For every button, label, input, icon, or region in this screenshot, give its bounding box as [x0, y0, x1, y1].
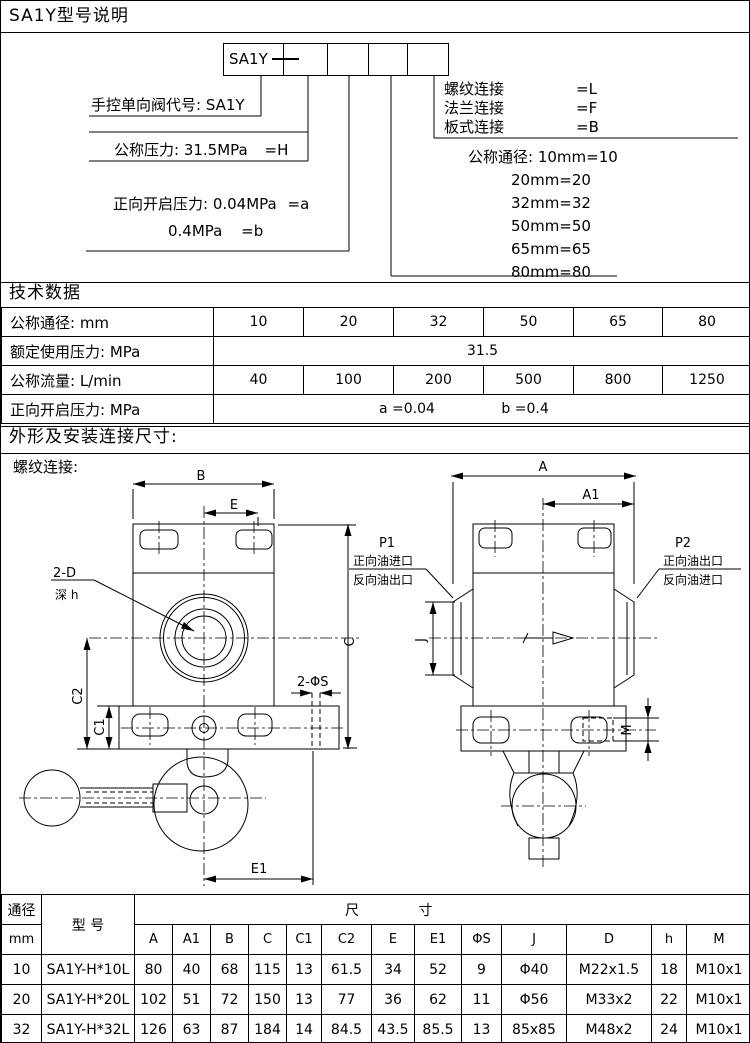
right-view-dimensions: A A1 J M P1 正向油进口 反向油出口 — [349, 460, 741, 761]
model-code-dash — [272, 58, 299, 60]
dim-label-E: E — [230, 498, 238, 513]
dimension-table: 通径 型 号 尺 寸 mm A A1 B C C1 C2 E E1 ΦS J D… — [1, 894, 750, 1043]
tech-data-table: 公称通径: mm 10 20 32 50 65 80 额定使用压力: MPa 3… — [1, 307, 750, 424]
cell: 84.5 — [322, 1015, 372, 1043]
cell-model: SA1Y-H*20L — [42, 985, 135, 1015]
connection-label: 螺纹连接 — [444, 80, 504, 98]
row-label: 额定使用压力: MPa — [2, 337, 214, 366]
cell: M10x1 — [687, 985, 750, 1015]
cell-dn: 32 — [2, 1015, 42, 1043]
header-dn-unit: mm — [2, 925, 42, 955]
dim-label-M: M — [620, 724, 635, 735]
cell: 115 — [249, 955, 287, 985]
cell: 1250 — [663, 366, 750, 395]
divider — [1, 453, 750, 454]
connection-label: 板式连接 — [444, 118, 504, 136]
outline-drawing: B E C C2 C1 — [1, 456, 750, 894]
cell: 40 — [173, 955, 211, 985]
cell: 150 — [249, 985, 287, 1015]
dim-label-C1: C1 — [93, 718, 108, 735]
nominal-pressure-code: =H — [265, 141, 289, 159]
nominal-pressure-label: 公称压力: 31.5MPa =H — [114, 142, 288, 159]
dim-label-C2: C2 — [71, 687, 86, 704]
cell: 72 — [211, 985, 249, 1015]
cell: 24 — [652, 1015, 687, 1043]
diameter-option: 20mm=20 — [511, 172, 591, 189]
cell: 85.5 — [415, 1015, 462, 1043]
cell: 85x85 — [502, 1015, 567, 1043]
cell: 34 — [372, 955, 415, 985]
cell: 68 — [211, 955, 249, 985]
cell: M10x1 — [687, 1015, 750, 1043]
cell-model: SA1Y-H*32L — [42, 1015, 135, 1043]
dim-label-C: C — [343, 637, 358, 646]
port-P1-line2: 反向油出口 — [353, 572, 413, 587]
cell: M10x1 — [687, 955, 750, 985]
col-header: C1 — [287, 925, 322, 955]
opening-b: b =0.4 — [501, 401, 548, 417]
cell-merged: a =0.04 b =0.4 — [214, 395, 750, 424]
connection-code: =F — [576, 100, 597, 117]
cell: Φ56 — [502, 985, 567, 1015]
diameter-option: 50mm=50 — [511, 218, 591, 235]
col-header: E — [372, 925, 415, 955]
cell-merged: 31.5 — [214, 337, 750, 366]
left-view-body — [89, 506, 361, 886]
port-label-P1: P1 — [379, 536, 395, 551]
cell: 13 — [287, 955, 322, 985]
cell: 20 — [304, 308, 394, 337]
opening-pressure-code1: =a — [288, 195, 310, 213]
col-header: h — [652, 925, 687, 955]
opening-pressure-line1: 正向开启压力: 0.04MPa =a — [113, 196, 309, 213]
col-header: C2 — [322, 925, 372, 955]
cell: 63 — [173, 1015, 211, 1043]
diameter-option: 32mm=32 — [511, 195, 591, 212]
cell: 65 — [574, 308, 663, 337]
dim-label-A1: A1 — [582, 488, 599, 503]
cell: 13 — [287, 985, 322, 1015]
opening-pressure-text2: 0.4MPa — [168, 222, 222, 240]
table-row: 公称通径: mm 10 20 32 50 65 80 — [2, 308, 750, 337]
dim-label-s-holes: 2-ΦS — [297, 675, 328, 690]
row-label: 正向开启压力: MPa — [2, 395, 214, 424]
cell: 100 — [304, 366, 394, 395]
cell: 40 — [214, 366, 304, 395]
col-header: D — [567, 925, 652, 955]
connection-option-thread: 螺纹连接 =L — [444, 81, 664, 98]
cell: 80 — [135, 955, 173, 985]
cell: 80 — [663, 308, 750, 337]
opening-pressure-line2: 0.4MPa =b — [168, 223, 263, 240]
connection-code: =B — [576, 119, 599, 136]
table-header-row: 通径 型 号 尺 寸 — [2, 895, 750, 925]
connection-code: =L — [576, 81, 597, 98]
left-view-handle — [19, 749, 266, 851]
cell: 500 — [484, 366, 574, 395]
col-header: E1 — [415, 925, 462, 955]
cell: 61.5 — [322, 955, 372, 985]
cell: 50 — [484, 308, 574, 337]
cell: 184 — [249, 1015, 287, 1043]
left-view-dimensions: B E C C2 C1 — [51, 469, 358, 885]
col-header: J — [502, 925, 567, 955]
cell: 800 — [574, 366, 663, 395]
cell-dn: 20 — [2, 985, 42, 1015]
dim-label-E1: E1 — [251, 862, 268, 877]
cell: 102 — [135, 985, 173, 1015]
header-dn: 通径 — [2, 895, 42, 925]
dim-label-A: A — [539, 460, 548, 475]
cell-dn: 10 — [2, 955, 42, 985]
header-size-r: 寸 — [418, 903, 432, 919]
cell: 126 — [135, 1015, 173, 1043]
cell: 36 — [372, 985, 415, 1015]
table-row: 额定使用压力: MPa 31.5 — [2, 337, 750, 366]
page-title: SA1Y型号说明 — [9, 7, 129, 26]
cell: 200 — [394, 366, 484, 395]
header-model: 型 号 — [42, 895, 135, 955]
cell: 43.5 — [372, 1015, 415, 1043]
dim-label-holes: 2-D — [53, 566, 76, 581]
cell: 62 — [415, 985, 462, 1015]
table-row: 20 SA1Y-H*20L 102 51 72 150 13 77 36 62 … — [2, 985, 750, 1015]
port-label-P2: P2 — [675, 536, 691, 551]
table-row: 公称流量: L/min 40 100 200 500 800 1250 — [2, 366, 750, 395]
dim-label-B: B — [197, 469, 206, 484]
table-row: 正向开启压力: MPa a =0.04 b =0.4 — [2, 395, 750, 424]
cell: Φ40 — [502, 955, 567, 985]
designation-label: 手控单向阀代号: SA1Y — [91, 97, 245, 114]
table-row: 10 SA1Y-H*10L 80 40 68 115 13 61.5 34 52… — [2, 955, 750, 985]
col-header: M — [687, 925, 750, 955]
table-row: 32 SA1Y-H*32L 126 63 87 184 14 84.5 43.5… — [2, 1015, 750, 1043]
cell: M22x1.5 — [567, 955, 652, 985]
col-header: B — [211, 925, 249, 955]
right-view-body — [429, 498, 659, 869]
cell: 18 — [652, 955, 687, 985]
cell: M33x2 — [567, 985, 652, 1015]
connection-label: 法兰连接 — [444, 99, 504, 117]
cell: 32 — [394, 308, 484, 337]
diameter-option-first: 公称通径: 10mm=10 — [468, 149, 618, 166]
divider — [1, 282, 750, 283]
port-P1-line1: 正向油进口 — [353, 553, 413, 568]
col-header: C — [249, 925, 287, 955]
col-header: A — [135, 925, 173, 955]
row-label: 公称通径: mm — [2, 308, 214, 337]
opening-pressure-text1: 正向开启压力: 0.04MPa — [113, 195, 277, 213]
connection-option-flange: 法兰连接 =F — [444, 100, 664, 117]
cell-model: SA1Y-H*10L — [42, 955, 135, 985]
cell: 9 — [462, 955, 502, 985]
header-size: 尺 寸 — [135, 895, 750, 925]
connection-option-plate: 板式连接 =B — [444, 119, 664, 136]
col-header: A1 — [173, 925, 211, 955]
opening-pressure-code2: =b — [241, 222, 263, 240]
dim-label-J: J — [414, 638, 429, 643]
diameter-option: 80mm=80 — [511, 264, 591, 281]
cell: 87 — [211, 1015, 249, 1043]
row-label: 公称流量: L/min — [2, 366, 214, 395]
dimensions-title: 外形及安装连接尺寸: — [9, 428, 178, 447]
cell: 22 — [652, 985, 687, 1015]
diameter-option: 65mm=65 — [511, 241, 591, 258]
cell: 77 — [322, 985, 372, 1015]
thread-connection-subtitle: 螺纹连接: — [13, 459, 78, 476]
tech-data-title: 技术数据 — [9, 284, 81, 303]
nominal-pressure-text: 公称压力: 31.5MPa — [114, 141, 248, 159]
cell: 52 — [415, 955, 462, 985]
cell: 10 — [214, 308, 304, 337]
port-P2-line2: 反向油进口 — [663, 572, 723, 587]
cell: 51 — [173, 985, 211, 1015]
cell: 14 — [287, 1015, 322, 1043]
dim-label-depth: 深 h — [55, 588, 78, 602]
col-header: ΦS — [462, 925, 502, 955]
cell: 13 — [462, 1015, 502, 1043]
header-size-l: 尺 — [345, 903, 359, 919]
datasheet-page: SA1Y型号说明 SA1Y 手控单向阀代号: SA1Y 公称压力: 31.5MP… — [0, 0, 750, 1043]
port-P2-line1: 正向油出口 — [663, 553, 723, 568]
opening-a: a =0.04 — [379, 401, 435, 417]
cell: 11 — [462, 985, 502, 1015]
cell: M48x2 — [567, 1015, 652, 1043]
